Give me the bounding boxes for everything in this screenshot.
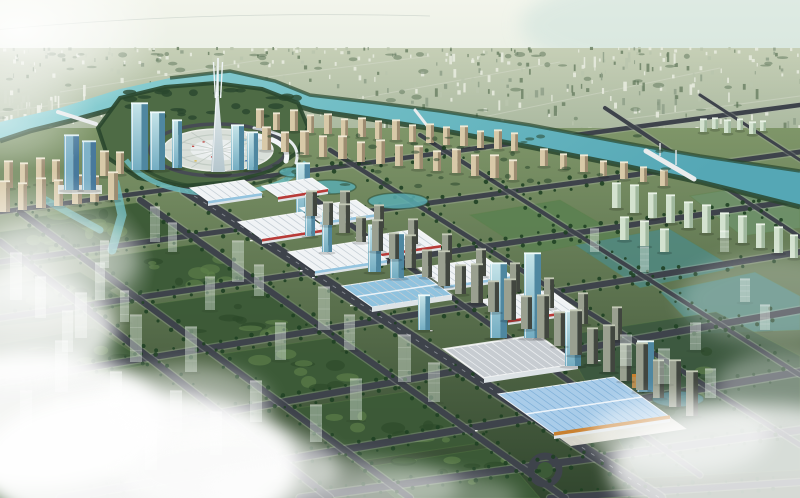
tan-tower-roof — [273, 112, 280, 114]
parcel-tree-clump — [294, 368, 307, 376]
street-tree — [535, 458, 539, 462]
street-tree — [407, 444, 410, 447]
street-tree — [674, 324, 678, 328]
distant-building — [535, 90, 538, 97]
distant-building — [623, 67, 625, 70]
street-tree — [190, 293, 193, 296]
street-tree — [678, 210, 682, 214]
street-tree — [693, 210, 696, 213]
street-tree — [220, 249, 224, 253]
street-tree — [452, 424, 455, 427]
riverside-tree-clump — [432, 136, 437, 141]
street-tree — [354, 307, 358, 311]
street-tree — [605, 256, 608, 259]
dark-residential-tower-roof — [408, 218, 418, 220]
distant-building — [743, 84, 746, 90]
pale-tower-roof — [660, 228, 669, 230]
pale-tower-side — [636, 186, 639, 213]
street-tree — [194, 203, 197, 206]
street-tree — [523, 206, 527, 210]
distant-building — [781, 73, 783, 76]
street-tree — [658, 327, 662, 331]
street-tree — [613, 275, 617, 279]
distant-building — [675, 106, 676, 112]
dark-residential-tower-side — [584, 294, 588, 324]
dark-residential-tower-roof — [669, 359, 681, 361]
distant-building — [590, 47, 593, 50]
distant-building — [689, 47, 691, 50]
street-tree — [583, 174, 587, 178]
riverside-tree-clump — [456, 146, 464, 149]
street-tree — [398, 386, 401, 389]
ghost-tower-roof — [428, 362, 440, 364]
street-tree — [436, 425, 440, 429]
riverside-tree-clump — [337, 164, 347, 166]
pale-tower — [660, 230, 666, 252]
distant-building — [749, 55, 752, 60]
distant-building — [757, 63, 758, 67]
tan-tower-side — [344, 137, 347, 159]
street-tree — [299, 337, 303, 341]
street-tree — [569, 238, 573, 242]
distant-building — [661, 47, 663, 50]
pale-tower-side — [716, 119, 718, 129]
distant-building — [363, 48, 365, 51]
tan-tower-roof — [338, 135, 347, 137]
dark-residential-tower — [356, 218, 362, 242]
street-tree — [455, 306, 457, 308]
street-tree — [448, 229, 451, 232]
street-tree — [228, 209, 231, 212]
street-tree — [315, 164, 318, 167]
street-tree — [515, 412, 518, 415]
street-tree — [597, 277, 601, 281]
street-tree — [205, 228, 208, 231]
distant-building — [435, 88, 438, 96]
tan-tower-roof — [281, 131, 289, 133]
riverside-tree-clump — [344, 159, 354, 162]
distant-tree-clump — [411, 95, 421, 100]
pale-tower — [790, 236, 795, 258]
street-tree — [539, 191, 543, 195]
ghost-tower-roof — [350, 378, 362, 380]
street-tree — [469, 424, 472, 427]
street-tree — [205, 352, 208, 355]
distant-building — [538, 59, 540, 65]
street-tree — [336, 277, 339, 280]
street-tree — [674, 300, 676, 302]
street-tree — [376, 449, 378, 451]
distant-building — [449, 56, 452, 65]
tan-tower — [494, 131, 499, 149]
ghost-tower-roof — [720, 230, 729, 232]
tan-tower — [640, 168, 644, 182]
street-tree — [167, 212, 170, 215]
street-tree — [475, 386, 479, 390]
parcel-tree-clump — [350, 423, 365, 433]
tan-tower-roof — [319, 135, 327, 137]
riverside-tree-clump — [426, 174, 432, 177]
street-tree — [570, 188, 573, 191]
distant-building — [781, 68, 784, 71]
distant-building — [282, 60, 285, 63]
street-tree — [443, 154, 446, 157]
distant-building — [618, 47, 619, 50]
dark-residential-tower-side — [544, 296, 549, 338]
pale-tower-side — [690, 203, 693, 228]
distant-building — [787, 121, 789, 128]
distant-building — [180, 50, 183, 53]
street-tree — [202, 342, 205, 345]
street-tree — [506, 248, 510, 252]
street-tree — [457, 312, 461, 316]
street-tree — [779, 218, 783, 222]
tan-tower-side — [261, 110, 264, 128]
tan-tower-side — [420, 147, 423, 169]
street-tree — [158, 360, 161, 363]
distant-building — [521, 89, 523, 99]
distant-building — [613, 56, 615, 59]
ghost-tower-roof — [620, 334, 632, 336]
street-tree — [444, 406, 447, 409]
pale-tower — [684, 203, 690, 228]
tan-tower-side — [604, 162, 607, 176]
distant-building — [357, 94, 359, 99]
street-tree — [631, 282, 634, 285]
distant-building — [309, 79, 312, 82]
street-tree — [521, 183, 524, 186]
distant-building — [621, 51, 623, 54]
distant-building — [340, 51, 343, 54]
street-tree — [391, 374, 395, 378]
street-tree — [601, 314, 604, 317]
ghost-tower-roof — [705, 368, 716, 370]
distant-tree-clump — [385, 53, 397, 55]
distant-building — [376, 91, 379, 96]
distant-building — [453, 69, 456, 78]
island-tree-clump — [291, 95, 302, 101]
street-tree — [585, 236, 588, 239]
distant-building — [472, 58, 474, 62]
tan-tower — [620, 163, 625, 179]
tan-tower — [460, 127, 465, 146]
street-tree — [567, 175, 571, 179]
tan-tower-roof — [426, 123, 434, 125]
street-tree — [125, 189, 129, 193]
tan-tower-roof — [490, 154, 499, 156]
distant-building — [297, 56, 300, 59]
plaza-glass-tower-roof — [247, 131, 258, 133]
riverside-tree-clump — [450, 183, 460, 186]
ghost-tower-roof — [150, 206, 160, 208]
distant-building — [581, 84, 582, 89]
plaza-glass-tower-roof — [172, 119, 182, 121]
riverside-tree-clump — [382, 180, 392, 184]
street-tree — [122, 343, 125, 346]
street-tree — [453, 435, 456, 438]
tan-tower-side — [121, 153, 124, 174]
street-tree — [442, 314, 447, 319]
tan-tower-side — [306, 132, 309, 155]
dark-residential-tower-roof — [340, 190, 350, 192]
distant-building — [427, 53, 428, 56]
dark-residential-tower-roof — [504, 278, 516, 280]
street-tree — [389, 369, 393, 373]
distant-building — [738, 50, 741, 53]
street-tree — [227, 267, 231, 271]
tan-tower-roof — [324, 113, 332, 115]
street-tree — [583, 225, 586, 228]
riverside-tree-clump — [500, 158, 507, 162]
tan-tower-side — [362, 143, 365, 162]
distant-building — [292, 52, 294, 55]
riverside-tree-clump — [374, 170, 381, 174]
street-tree — [393, 310, 396, 313]
distant-tree-clump — [418, 69, 428, 74]
tan-tower-roof — [376, 139, 385, 141]
pale-tower — [738, 217, 744, 243]
distant-building — [721, 69, 722, 74]
street-tree — [405, 430, 409, 434]
distant-building — [639, 91, 640, 95]
parcel-tree-clump — [234, 304, 242, 309]
distant-building — [622, 98, 625, 105]
distant-building — [483, 50, 484, 53]
street-tree — [221, 289, 225, 293]
street-tree — [200, 248, 204, 252]
street-tree — [330, 433, 333, 436]
street-tree — [377, 313, 380, 316]
street-tree — [528, 477, 532, 481]
pale-tower — [612, 184, 618, 208]
street-tree — [142, 195, 145, 198]
tan-tower-side — [481, 132, 484, 148]
street-tree — [297, 325, 302, 330]
dark-residential-tower-side — [329, 203, 333, 225]
street-tree — [521, 243, 525, 247]
street-tree — [140, 186, 144, 190]
street-tree — [388, 435, 392, 439]
tan-tower — [100, 152, 106, 176]
street-tree — [362, 393, 365, 396]
tan-tower — [395, 146, 400, 166]
island-tree-clump — [154, 90, 168, 94]
dark-residential-tower-side — [516, 264, 520, 292]
street-tree — [299, 277, 303, 281]
tan-tower-side — [277, 114, 280, 130]
pale-tower-roof — [684, 201, 693, 203]
distant-building — [335, 62, 337, 66]
tan-tower-side — [665, 171, 668, 186]
plaza-glass-tower-roof — [231, 124, 244, 126]
distant-building — [657, 99, 660, 110]
tan-tower — [116, 153, 121, 174]
dark-residential-tower-side — [462, 266, 466, 294]
distant-building — [450, 48, 451, 51]
tan-tower — [540, 150, 545, 166]
glass-office-tower-roof — [418, 294, 430, 296]
dark-residential-tower — [537, 296, 544, 338]
dark-residential-tower-roof — [488, 280, 499, 282]
distant-building — [478, 82, 480, 88]
street-tree — [124, 355, 126, 357]
distant-building — [625, 58, 628, 69]
street-tree — [516, 189, 519, 192]
distant-building — [442, 49, 443, 52]
street-tree — [338, 331, 341, 334]
distant-building — [610, 96, 612, 101]
distant-tree-clump — [514, 52, 525, 57]
distant-building — [700, 48, 703, 51]
street-tree — [282, 243, 286, 247]
street-tree — [661, 266, 665, 270]
street-tree — [366, 179, 369, 182]
street-tree — [144, 310, 148, 314]
street-tree — [410, 320, 413, 323]
distant-building — [304, 65, 307, 69]
street-tree — [443, 204, 446, 207]
street-tree — [457, 254, 461, 258]
riverside-tree-clump — [525, 166, 530, 169]
tan-tower-roof — [395, 144, 403, 146]
dark-residential-tower-side — [550, 279, 554, 308]
distant-tree-clump — [684, 54, 690, 59]
street-tree — [475, 442, 479, 446]
street-tree — [260, 247, 263, 250]
tan-tower-roof — [460, 125, 468, 127]
street-tree — [599, 288, 602, 291]
riverside-tree-clump — [520, 141, 527, 143]
tan-tower — [273, 114, 277, 130]
street-tree — [490, 187, 493, 190]
dark-residential-tower-side — [511, 280, 516, 320]
tan-tower-side — [458, 150, 461, 173]
dark-residential-tower — [554, 313, 561, 346]
distant-building — [756, 89, 759, 99]
street-tree — [759, 209, 763, 213]
distant-building — [766, 58, 769, 61]
street-tree — [316, 173, 320, 177]
street-tree — [597, 323, 600, 326]
street-tree — [569, 465, 574, 470]
distant-building — [480, 71, 482, 75]
tan-tower-side — [438, 152, 441, 171]
pale-tower-roof — [712, 117, 718, 119]
street-tree — [297, 390, 301, 394]
street-tree — [330, 161, 335, 166]
distant-building — [190, 53, 192, 56]
dark-residential-tower-side — [362, 218, 366, 242]
distant-building — [507, 94, 509, 97]
street-tree — [268, 281, 272, 285]
street-tree — [596, 488, 599, 491]
distant-building — [411, 101, 414, 104]
distant-building — [526, 63, 529, 67]
dark-residential-tower — [636, 344, 643, 390]
ghost-tower-roof — [344, 314, 355, 316]
street-tree — [474, 200, 479, 205]
distant-building — [634, 47, 636, 50]
street-tree — [330, 398, 335, 403]
tan-tower-side — [476, 156, 479, 176]
street-tree — [427, 158, 430, 161]
island-tree-clump — [138, 95, 152, 99]
dark-residential-tower-roof — [405, 234, 416, 236]
street-tree — [364, 328, 367, 331]
street-tree — [520, 235, 523, 238]
street-tree — [472, 467, 476, 471]
street-tree — [611, 250, 614, 253]
distant-building — [755, 48, 758, 51]
island-tree-clump — [188, 115, 197, 120]
street-tree — [371, 437, 375, 441]
street-tree — [612, 486, 615, 489]
riverside-tree-clump — [633, 134, 642, 137]
street-tree — [314, 324, 316, 326]
street-tree — [425, 148, 429, 152]
distant-tree-clump — [724, 86, 732, 90]
distant-building — [652, 67, 654, 71]
distant-building — [319, 60, 321, 63]
tan-tower-roof — [256, 108, 264, 110]
street-tree — [487, 465, 490, 468]
street-tree — [237, 232, 240, 235]
street-tree — [228, 357, 232, 361]
pale-tower-side — [704, 120, 707, 132]
pale-tower — [648, 194, 654, 218]
dark-residential-tower-side — [594, 329, 598, 364]
distant-tree-clump — [175, 68, 185, 73]
dark-residential-tower-roof — [389, 232, 399, 234]
tan-tower — [433, 152, 438, 171]
street-tree — [439, 212, 442, 215]
parcel-tree-clump — [239, 326, 262, 332]
street-tree — [394, 322, 397, 325]
dark-residential-tower-roof — [544, 277, 554, 279]
riverside-tree-clump — [661, 167, 671, 170]
glass-office-tower-side — [399, 234, 404, 278]
distant-building — [368, 58, 370, 61]
street-tree — [618, 266, 622, 270]
street-tree — [683, 365, 686, 368]
street-tree — [600, 181, 605, 186]
dark-residential-tower-roof — [372, 219, 383, 221]
riverside-tree-clump — [411, 150, 419, 153]
street-tree — [345, 396, 348, 399]
pale-tower — [640, 222, 646, 246]
street-tree — [752, 200, 755, 203]
dark-residential-tower — [570, 311, 577, 355]
distant-building — [674, 89, 677, 95]
distant-building — [463, 83, 465, 92]
street-tree — [146, 363, 149, 366]
riverside-tree-clump — [410, 142, 418, 145]
street-tree — [403, 320, 407, 324]
street-tree — [359, 316, 363, 320]
dark-residential-tower-roof — [471, 263, 483, 265]
street-tree — [151, 300, 155, 304]
street-tree — [207, 211, 211, 215]
street-tree — [357, 440, 361, 444]
distant-building — [687, 66, 690, 70]
street-tree — [255, 377, 257, 379]
tan-tower — [414, 147, 420, 169]
distant-tree-clump — [393, 55, 402, 60]
aerial-city-masterplan-rendering — [0, 0, 800, 498]
pale-tower — [620, 218, 626, 240]
dark-residential-tower-roof — [537, 294, 549, 296]
distant-building — [710, 107, 713, 111]
